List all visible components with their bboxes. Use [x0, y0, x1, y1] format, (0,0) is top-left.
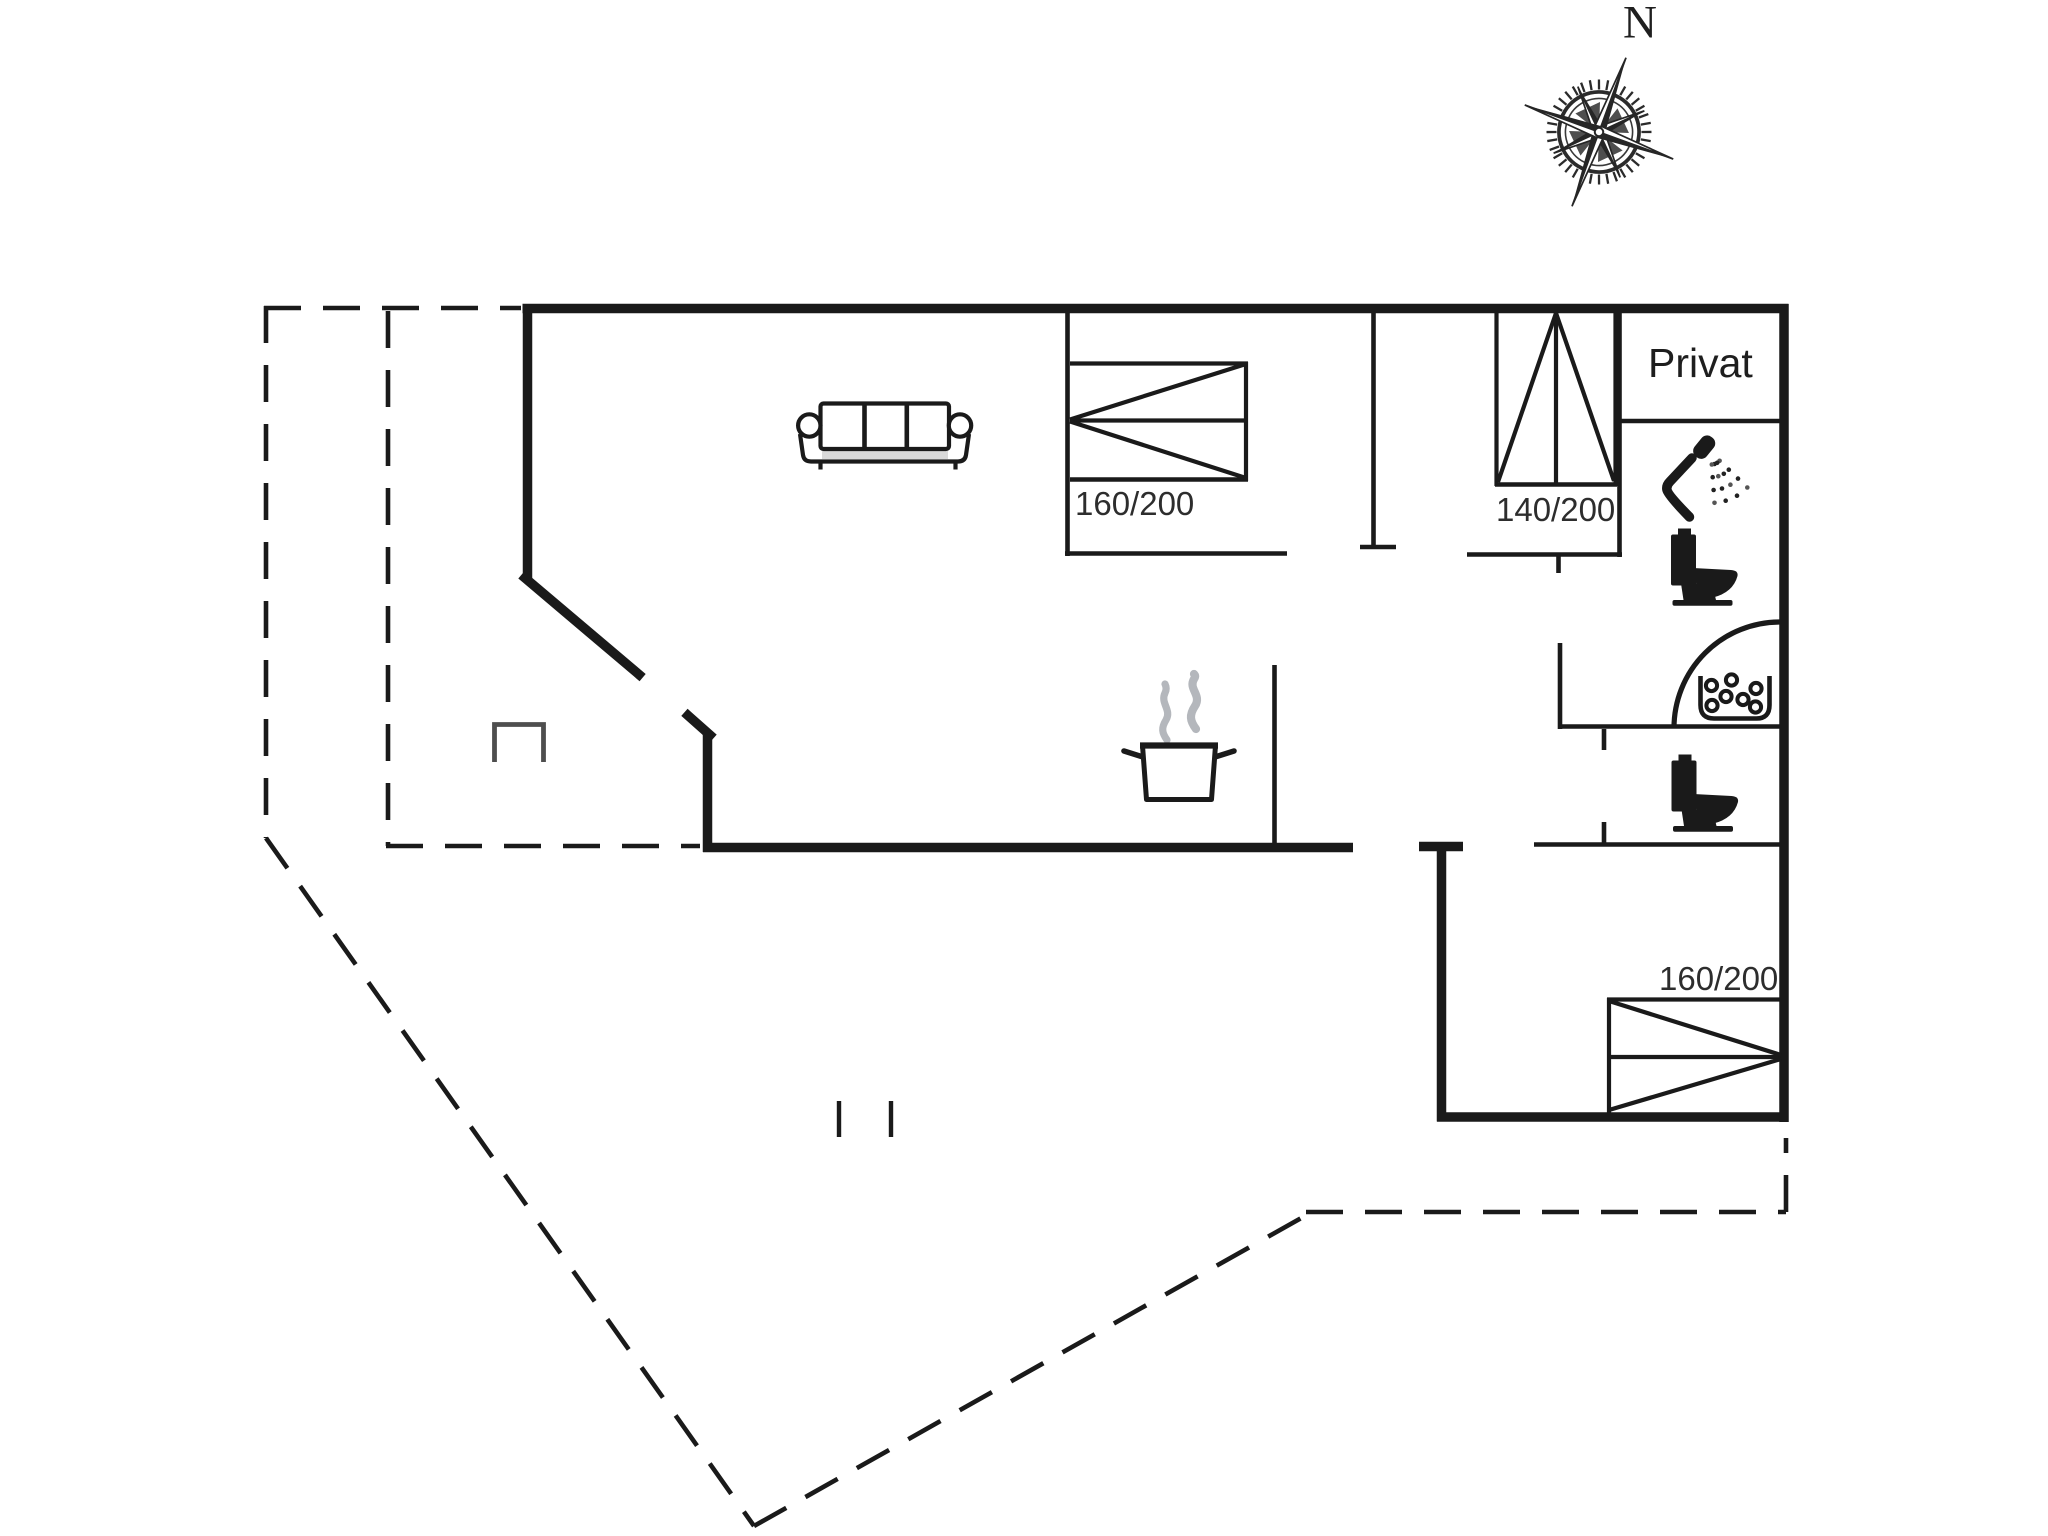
- svg-text:160/200: 160/200: [1075, 485, 1194, 522]
- svg-text:N: N: [1623, 0, 1657, 49]
- svg-text:140/200: 140/200: [1496, 491, 1615, 528]
- svg-text:Privat: Privat: [1648, 340, 1753, 386]
- svg-text:160/200: 160/200: [1659, 960, 1778, 997]
